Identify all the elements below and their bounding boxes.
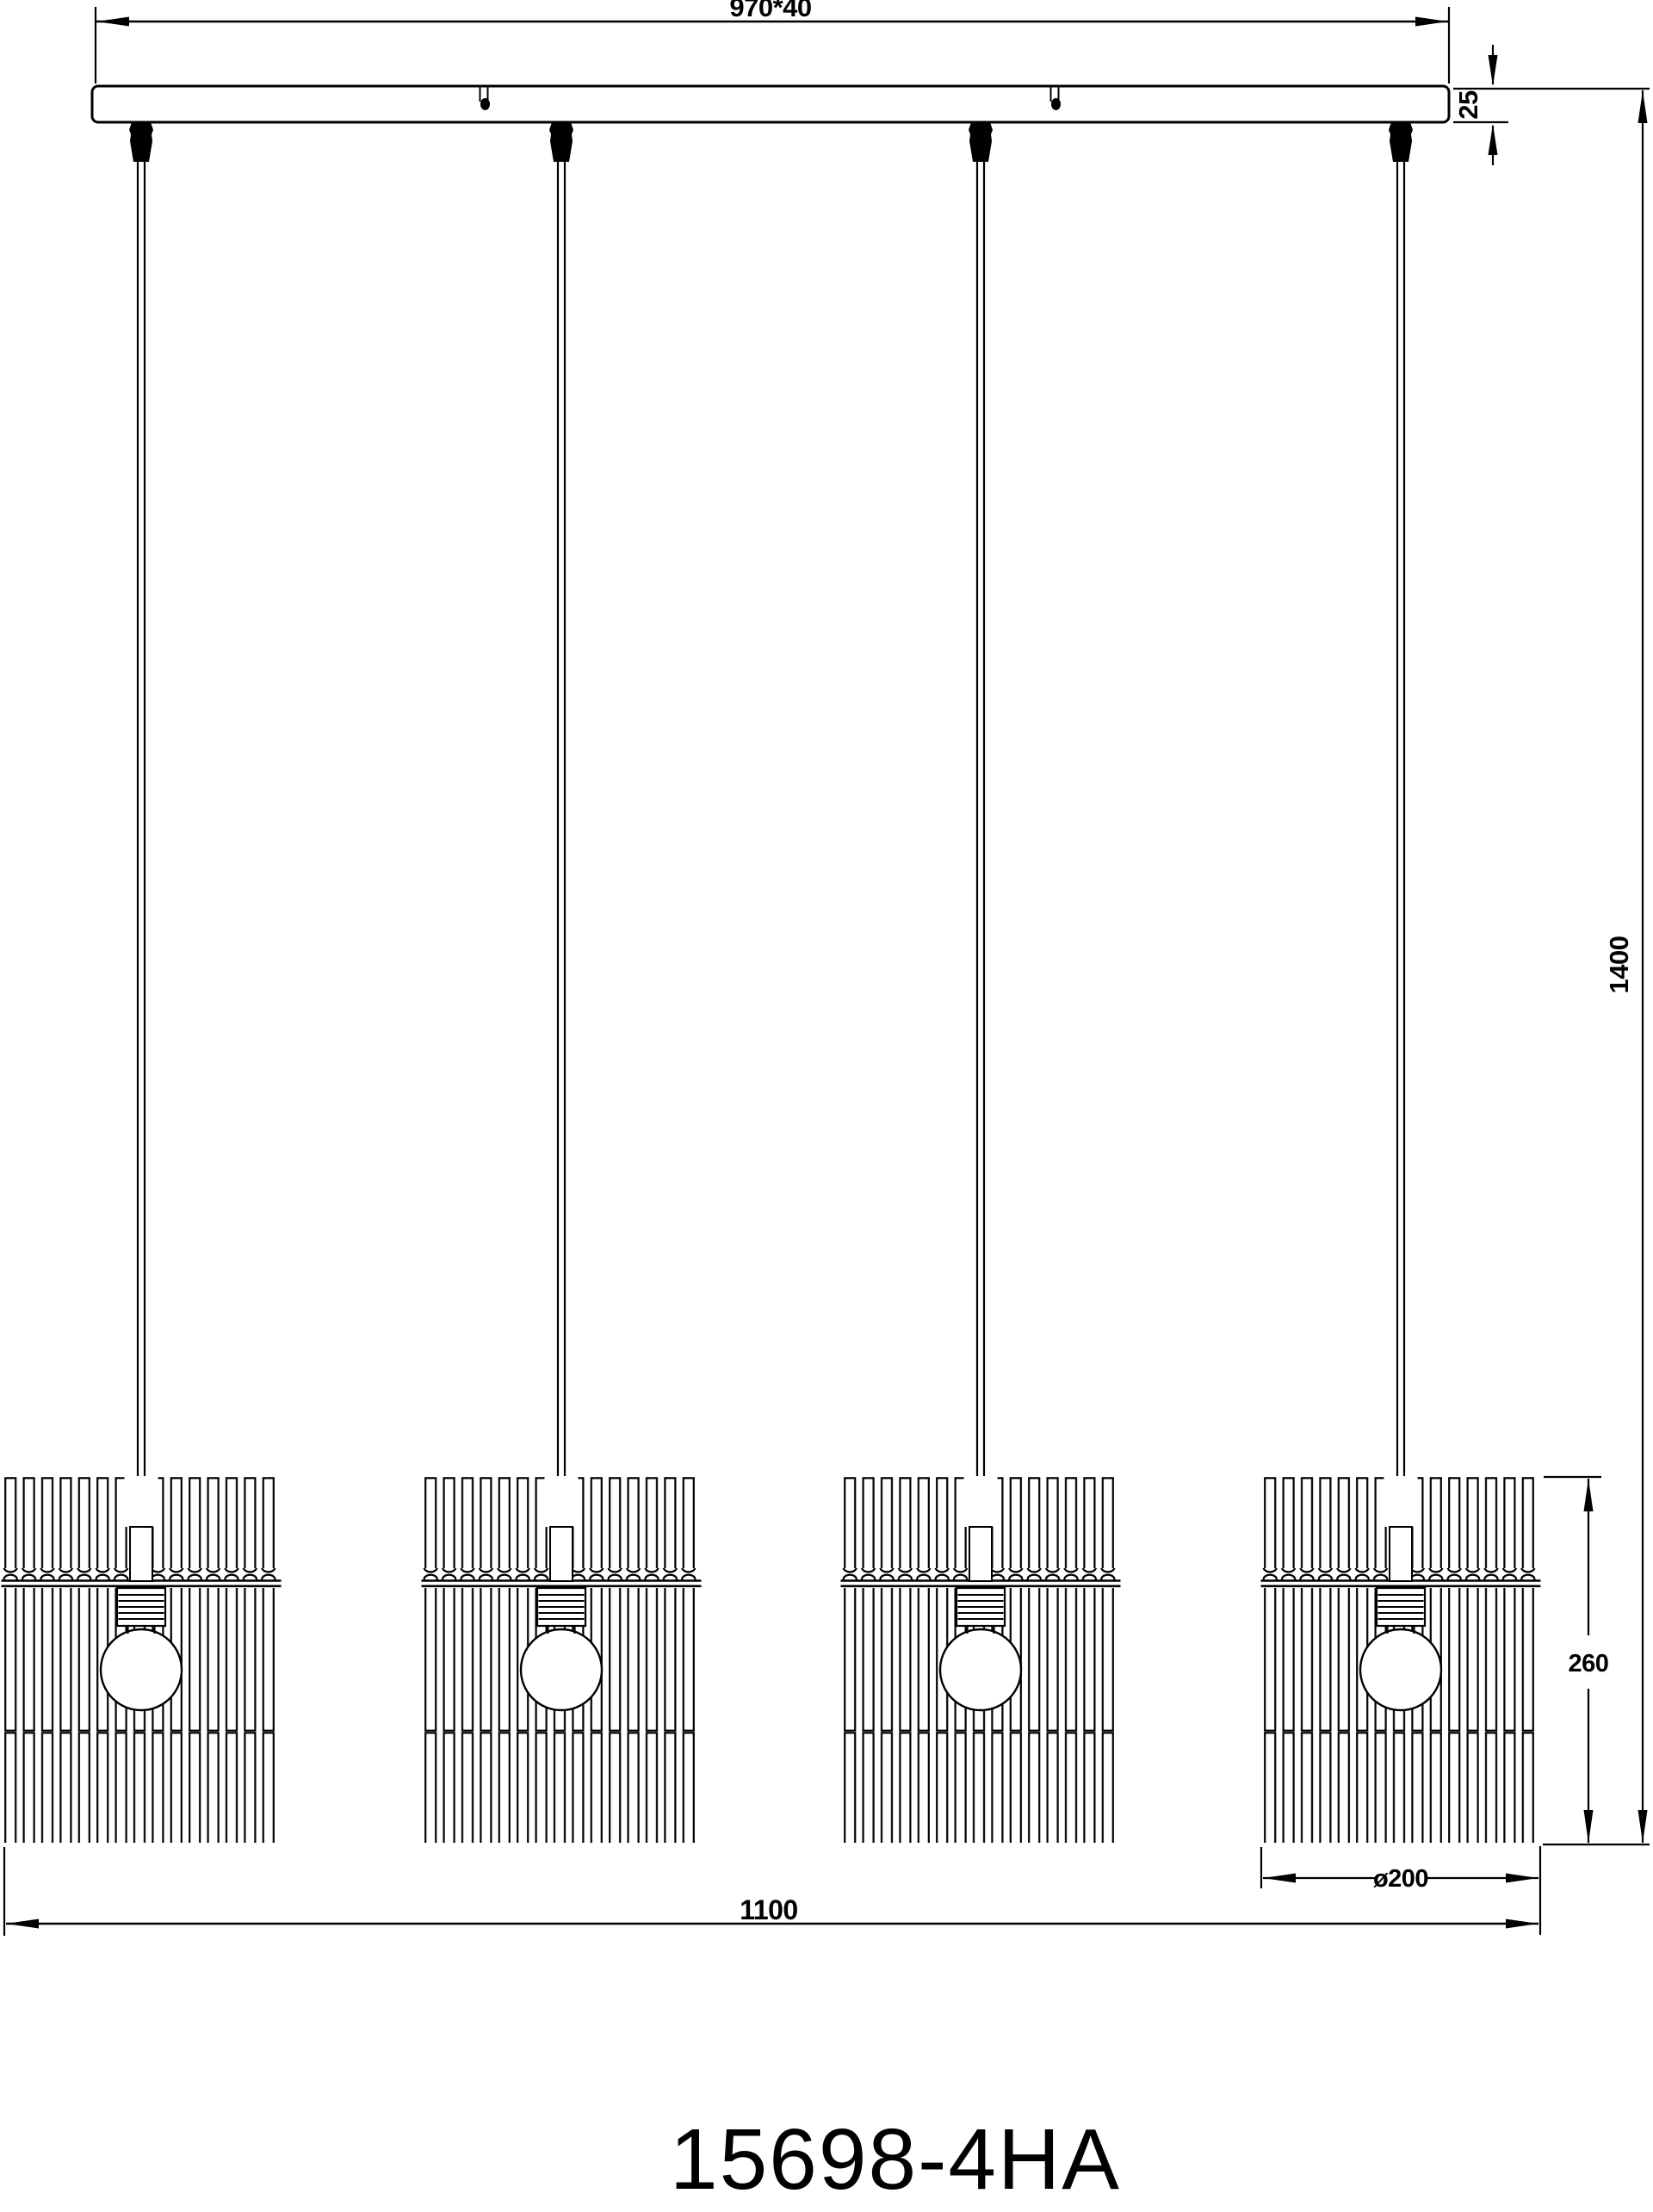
arrowhead-up-icon <box>1584 1479 1594 1511</box>
dimension-shade-diameter: ø200 <box>1261 1846 1540 1935</box>
pendant-lamp-dimension-drawing: 970*40 25 1400 260 ø200 <box>0 0 1653 2212</box>
pendant-cable-1 <box>138 162 145 1502</box>
pendant-shade-4 <box>1261 1476 1541 1843</box>
shade-diameter-label: ø200 <box>1373 1865 1428 1893</box>
pendant-cable-4 <box>1397 162 1404 1502</box>
technical-drawing-page: 970*40 25 1400 260 ø200 <box>0 0 1653 2212</box>
canopy-bar <box>92 86 1449 122</box>
cords-group <box>129 122 1413 1502</box>
dimension-canopy-thickness: 25 <box>1453 45 1508 165</box>
pendant-shade-3 <box>841 1476 1121 1843</box>
shades-group <box>2 1476 1541 1843</box>
canopy-thickness-label: 25 <box>1453 90 1483 120</box>
canopy-group <box>92 86 1449 122</box>
pendant-shade-1 <box>2 1476 282 1843</box>
arrowhead-left-icon <box>6 1919 39 1929</box>
pendant-shade-2 <box>422 1476 702 1843</box>
cord-grip-2 <box>549 122 573 162</box>
product-number: 15698-4HA <box>670 2111 1121 2208</box>
pendant-cable-3 <box>977 162 984 1502</box>
canopy-width-label: 970*40 <box>729 0 811 22</box>
arrowhead-right-icon <box>1415 17 1448 27</box>
arrowhead-left-icon <box>96 17 129 27</box>
arrowhead-down-icon <box>1489 55 1498 86</box>
dimension-canopy-width: 970*40 <box>96 0 1449 83</box>
arrowhead-down-icon <box>1584 1810 1594 1843</box>
arrowhead-down-icon <box>1638 1810 1648 1843</box>
dimension-shade-height: 260 <box>1544 1477 1608 1843</box>
pendant-cable-2 <box>558 162 565 1502</box>
arrowhead-up-icon <box>1638 90 1648 123</box>
drop-height-label: 1400 <box>1604 936 1634 994</box>
arrowhead-left-icon <box>1263 1874 1296 1883</box>
cord-grip-4 <box>1389 122 1413 162</box>
arrowhead-up-icon <box>1489 124 1498 155</box>
dimension-overall-width: 1100 <box>4 1847 1538 1936</box>
cord-grip-3 <box>969 122 993 162</box>
arrowhead-right-icon <box>1506 1874 1538 1883</box>
shade-height-label: 260 <box>1569 1650 1609 1678</box>
overall-width-label: 1100 <box>740 1894 797 1925</box>
arrowhead-right-icon <box>1506 1919 1538 1929</box>
cord-grip-1 <box>129 122 153 162</box>
